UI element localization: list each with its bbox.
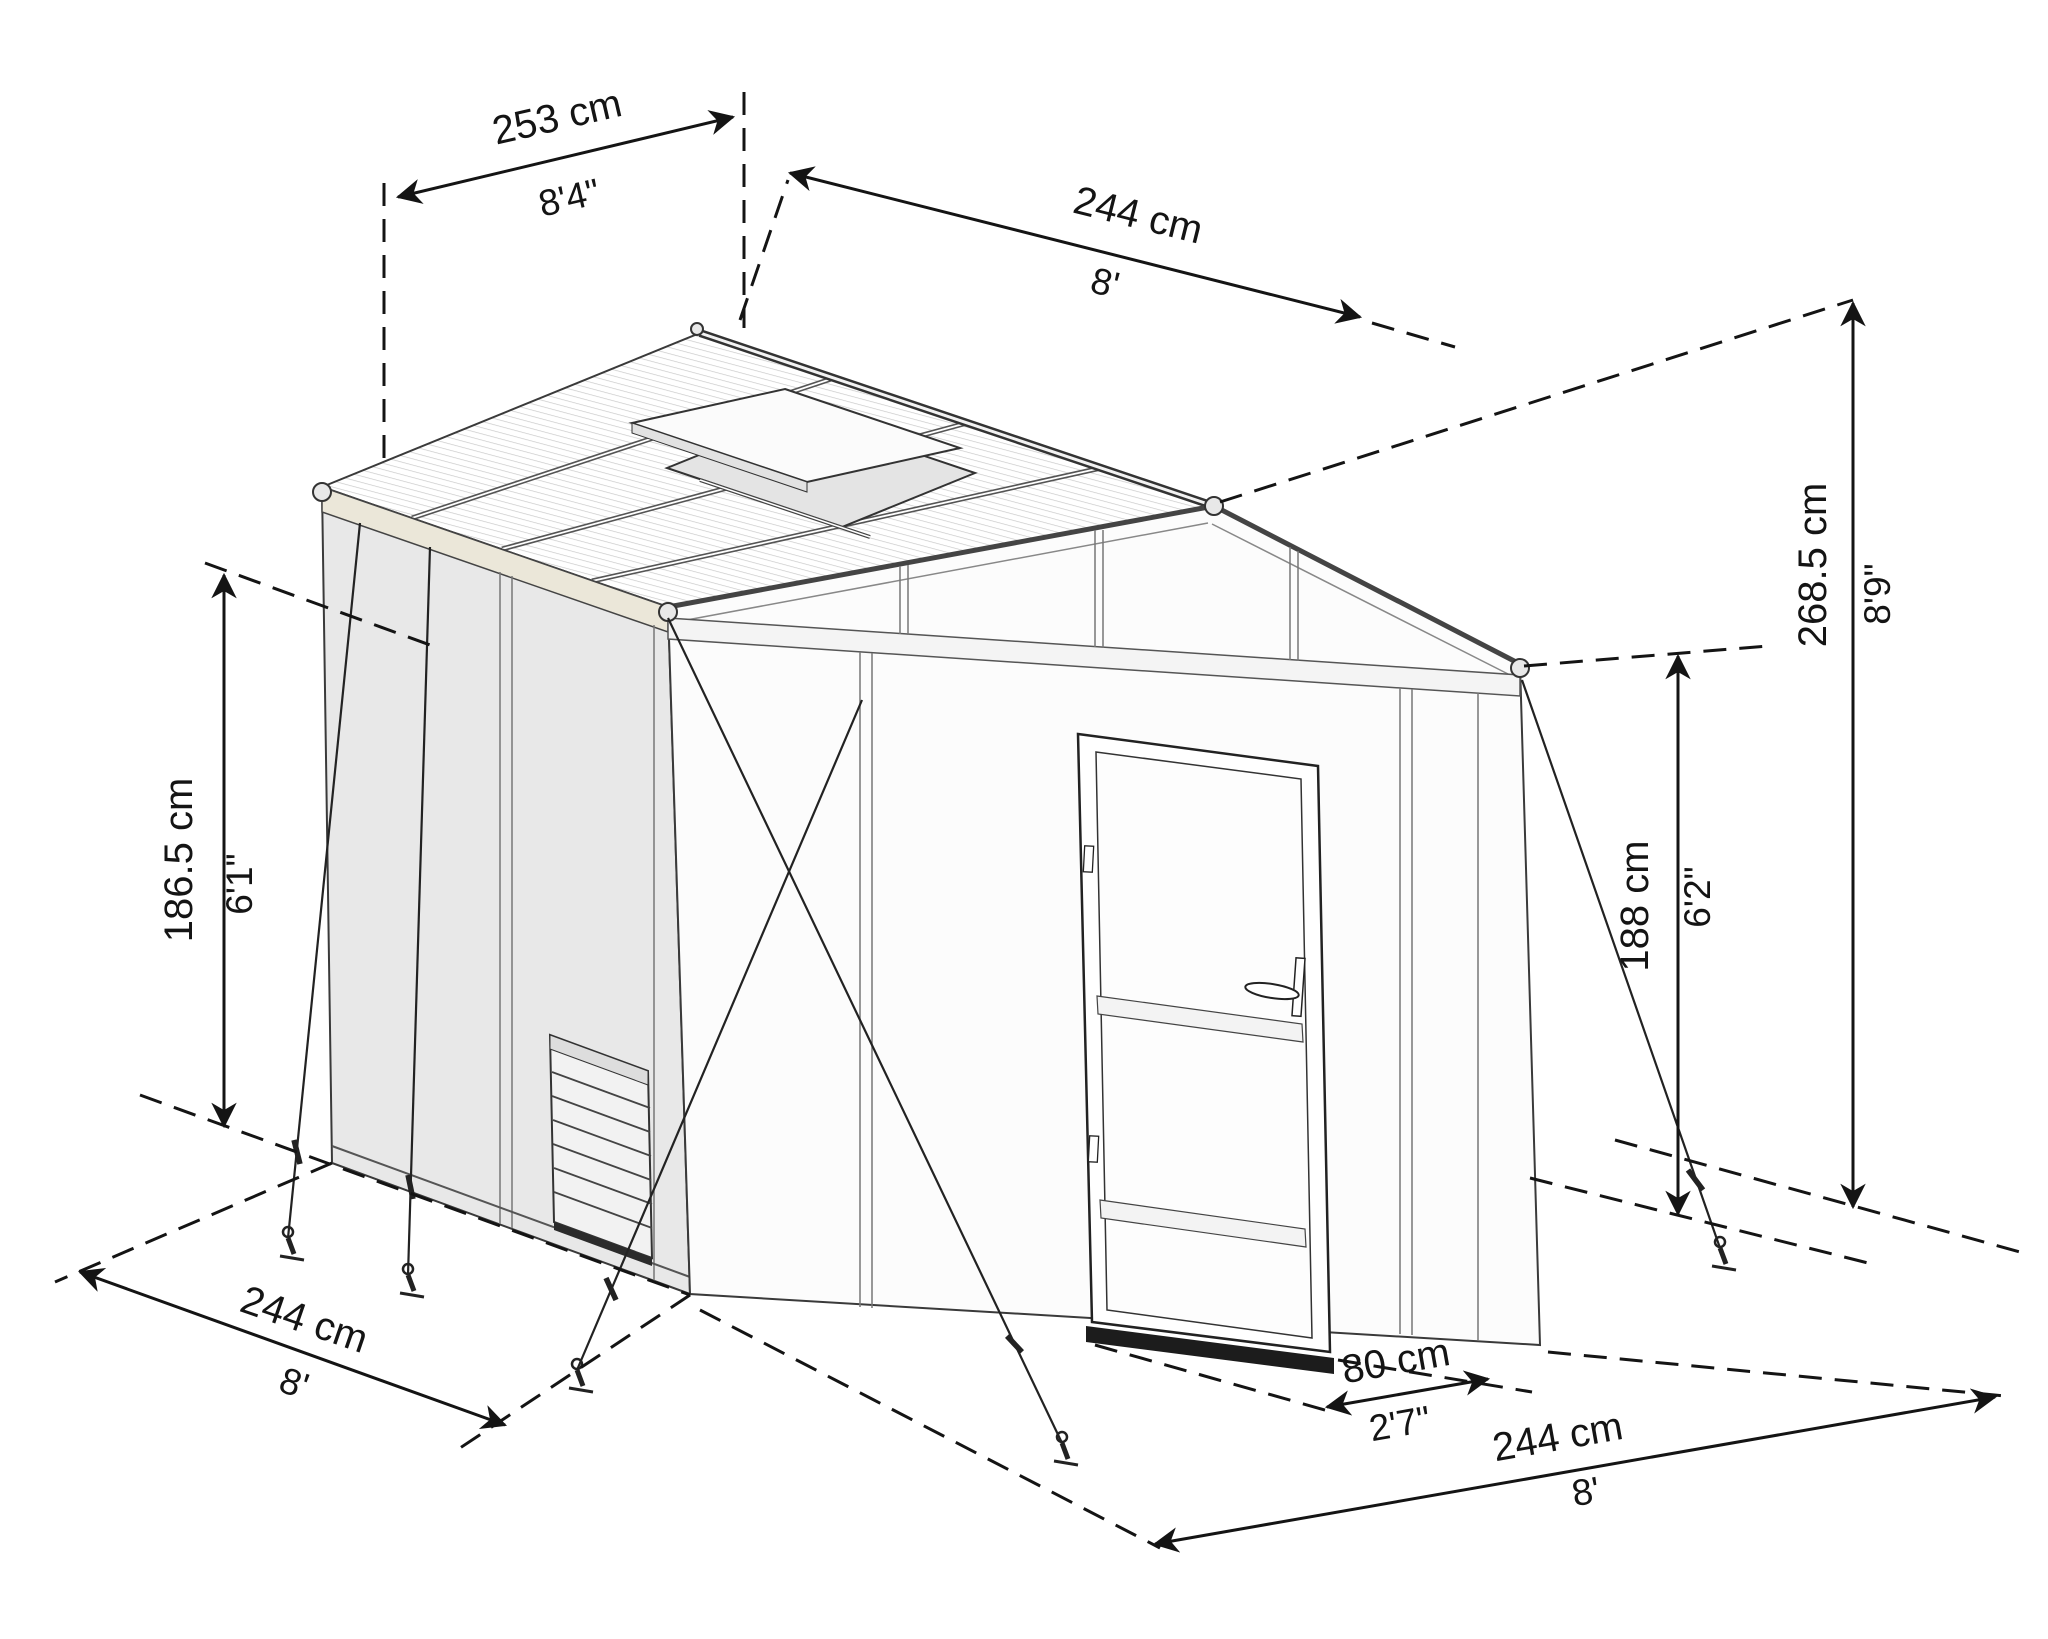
ground-anchor xyxy=(569,1359,593,1392)
left-wall xyxy=(322,487,690,1294)
label-roof-length-imperial: 8' xyxy=(1087,260,1124,306)
corner-bracket xyxy=(1511,659,1529,677)
door-leaf xyxy=(1096,752,1312,1338)
label-roof-length-metric: 244 cm xyxy=(1069,178,1207,252)
door-hinge xyxy=(1088,1136,1098,1162)
extension-line xyxy=(1220,300,1853,502)
label-peak-height-metric: 268.5 cm xyxy=(1791,483,1835,648)
diagram-canvas: 253 cm 8'4" 244 cm 8' 268.5 cm 8'9" 188 … xyxy=(0,0,2048,1639)
label-door-width-imperial: 2'7" xyxy=(1366,1398,1434,1449)
label-door-height-imperial: 6'2" xyxy=(1677,866,1718,927)
label-base-depth-imperial: 8' xyxy=(274,1359,313,1407)
greenhouse-drawing xyxy=(280,323,1736,1465)
extension-line xyxy=(1548,1352,2005,1396)
dim-roof-length: 244 cm 8' xyxy=(740,173,1455,347)
dim-door-height: 188 cm 6'2" xyxy=(1524,646,1872,1264)
ground-anchor xyxy=(1712,1237,1736,1270)
ground-anchor xyxy=(280,1227,304,1260)
extension-line xyxy=(1524,646,1768,666)
greenhouse-dimension-diagram: 253 cm 8'4" 244 cm 8' 268.5 cm 8'9" 188 … xyxy=(0,0,2048,1639)
extension-line xyxy=(700,1310,1160,1548)
label-roof-panel-width-imperial: 8'4" xyxy=(535,171,604,225)
label-side-wall-height-imperial: 6'1" xyxy=(219,853,260,914)
label-door-height-metric: 188 cm xyxy=(1613,840,1657,971)
label-peak-height-imperial: 8'9" xyxy=(1857,563,1898,624)
extension-line xyxy=(1372,323,1455,347)
ground-anchor xyxy=(400,1264,424,1297)
label-base-width-metric: 244 cm xyxy=(1489,1404,1626,1470)
extension-line xyxy=(1615,1140,2020,1252)
front-wall xyxy=(668,506,1540,1374)
label-base-width-imperial: 8' xyxy=(1569,1469,1603,1514)
label-side-wall-height-metric: 186.5 cm xyxy=(157,778,201,943)
ground-anchor xyxy=(1054,1432,1078,1465)
turnbuckle xyxy=(1688,1170,1703,1190)
corner-bracket xyxy=(313,483,331,501)
label-door-width-metric: 80 cm xyxy=(1338,1330,1453,1392)
apex-bracket xyxy=(1205,497,1223,515)
label-roof-panel-width-metric: 253 cm xyxy=(488,81,626,153)
door-hinge xyxy=(1083,846,1093,872)
extension-line xyxy=(740,180,788,320)
turnbuckle xyxy=(1007,1336,1022,1352)
ridge-end-cap xyxy=(691,323,703,335)
label-base-depth-metric: 244 cm xyxy=(235,1278,373,1362)
door xyxy=(1078,734,1334,1374)
